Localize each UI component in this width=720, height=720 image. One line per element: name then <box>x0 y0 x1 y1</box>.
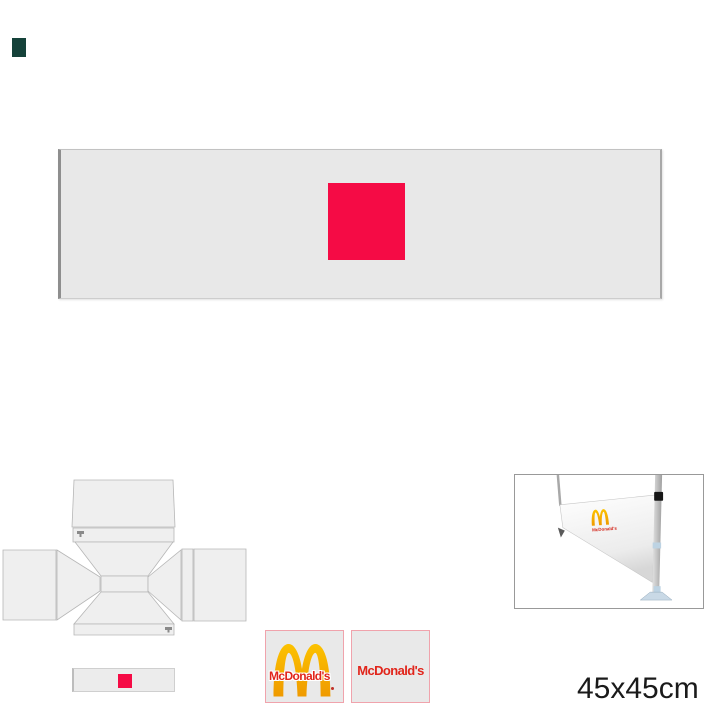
product-photo-frame: McDonald's <box>514 474 704 609</box>
size-label: 45x45cm <box>577 672 699 706</box>
tent-bottom-band <box>74 624 174 635</box>
pole-foot-plate <box>640 592 672 600</box>
tent-right-strip <box>182 549 193 621</box>
color-swatch[interactable] <box>12 38 26 57</box>
tent-center-panel <box>101 576 148 592</box>
left-pole <box>558 475 560 506</box>
logo-thumbnail-wordmark[interactable]: McDonald's <box>351 630 430 703</box>
halfwall-fabric <box>560 495 657 582</box>
golden-arches-icon <box>270 639 334 697</box>
print-area-square[interactable] <box>328 183 405 260</box>
tent-top-band <box>73 528 174 542</box>
tent-right-wing <box>194 549 246 621</box>
mcdonalds-wordmark: McDonald's <box>269 669 330 683</box>
pole-connector <box>653 542 661 548</box>
pole-clamp <box>654 492 663 501</box>
tent-left-wing <box>3 550 56 620</box>
tent-layout-template <box>0 476 250 642</box>
mcdonalds-wordmark: McDonald's <box>352 663 429 678</box>
tent-top-panel <box>72 480 175 527</box>
left-pole-tip <box>558 528 565 538</box>
trademark-dot <box>331 687 334 690</box>
logo-thumbnail-arches[interactable]: McDonald's <box>265 630 344 703</box>
tent-halfwall-photo: McDonald's <box>515 475 703 608</box>
mini-print-area-square <box>118 674 132 688</box>
tent-template-panels <box>3 480 246 635</box>
